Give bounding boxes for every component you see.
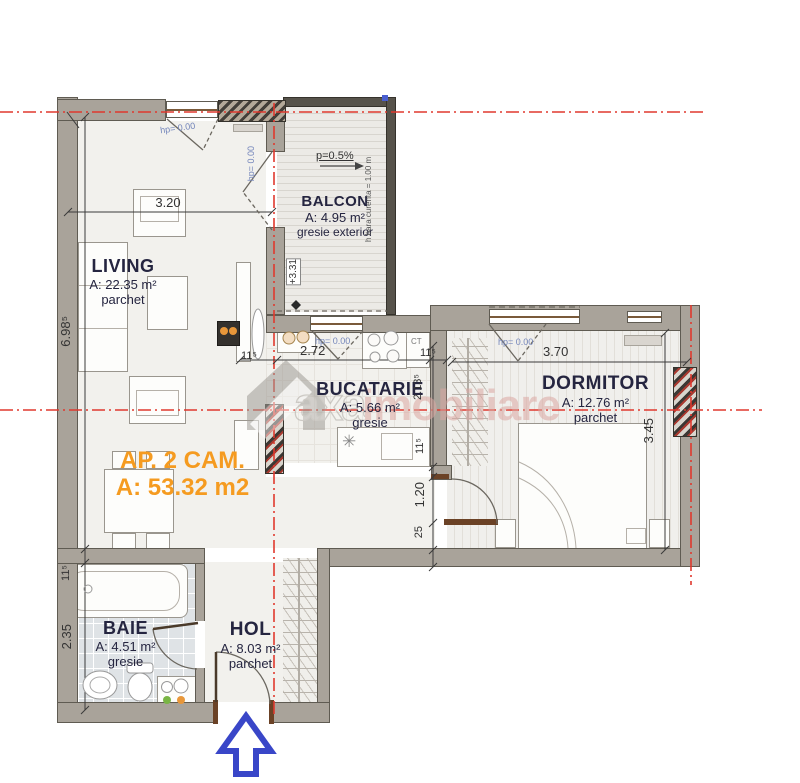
armchair-bottom-cushion — [136, 390, 179, 416]
hob-unit — [217, 321, 240, 346]
bedroom-window-small — [627, 311, 662, 323]
apartment-total-area: A: 53.32 m2 — [105, 474, 260, 501]
wall-bottom-band — [317, 548, 700, 567]
dim-bathroom-height: 2.35 — [59, 624, 74, 649]
vent-top — [233, 124, 263, 132]
bedroom-area: A: 12.76 m² — [528, 395, 663, 410]
dim-wall-115: 11⁵ — [60, 565, 72, 581]
bedroom-name: DORMITOR — [528, 373, 663, 395]
pillar-mid-hatch — [265, 404, 284, 474]
living-name: LIVING — [68, 256, 178, 277]
dim-living-width: 3.20 — [138, 195, 198, 210]
entrance-opening — [218, 702, 270, 723]
kitchen-window — [310, 316, 363, 331]
hp-label-bedroom-window: hp= 0.00 — [498, 337, 533, 347]
bedroom-window — [489, 309, 580, 324]
tv-board — [236, 262, 251, 362]
living-right-wall-lower — [266, 227, 285, 315]
kitchen-floor-type: gresie — [305, 415, 435, 430]
nightstand-left — [495, 519, 516, 548]
balcony-wall-top — [283, 97, 395, 107]
living-window — [166, 101, 218, 118]
bathroom-wall-top — [57, 548, 205, 564]
pillar-right-hatch — [673, 367, 697, 437]
bathroom-floor-type: gresie — [83, 654, 168, 669]
apartment-title: AP. 2 CAM. A: 53.32 m2 — [105, 447, 260, 501]
slope-label: p=0.5% — [316, 150, 354, 162]
bedroom-door-jamb-top — [431, 474, 449, 479]
pillow — [626, 528, 646, 544]
hp-label-balcony-door: hp= 0.00 — [246, 146, 256, 181]
entrance-jamb-left — [213, 700, 218, 724]
bedroom-radiator — [624, 335, 662, 346]
bathroom-label: BAIE A: 4.51 m² gresie — [83, 618, 168, 669]
wall-bottom — [57, 702, 330, 723]
living-area: A: 22.35 m² — [68, 277, 178, 292]
dim-bedroom-height: 3.45 — [641, 418, 656, 443]
dim-kitchen-height: 2.13⁵ — [412, 374, 424, 400]
living-floor-type: parchet — [68, 292, 178, 307]
bathtub-inner — [68, 571, 180, 611]
bedroom-door-leaf — [444, 519, 498, 525]
hol-wall-right — [317, 548, 330, 722]
bedroom-wardrobe-hatch — [452, 338, 488, 466]
dim-door-height: 1.20 — [412, 482, 427, 507]
corridor-floor — [266, 477, 435, 548]
dim-wall-115: 11⁵ — [420, 347, 436, 359]
balcony-level-label: +3.31 — [286, 258, 301, 285]
railing-height-label: h bara curenta = 1.00 m — [364, 112, 373, 242]
hp-label-kitchen-window: hp= 0.00 — [315, 336, 350, 346]
hall-area: A: 8.03 m² — [203, 641, 298, 656]
dim-wall-25: 25 — [413, 526, 425, 538]
dim-wall-115: 11⁵ — [414, 438, 426, 454]
bathroom-area: A: 4.51 m² — [83, 639, 168, 654]
nightstand-right — [649, 519, 670, 548]
hall-name: HOL — [203, 619, 298, 641]
dim-wall-115: 11⁵ — [241, 350, 257, 362]
kitchen-counter-inner — [381, 433, 413, 460]
wall-top — [57, 99, 166, 121]
balcony-wall-right — [386, 97, 396, 315]
wall-hatch-top — [218, 100, 286, 122]
living-label: LIVING A: 22.35 m² parchet — [68, 256, 178, 307]
stove — [362, 329, 407, 369]
kitchen-area: A: 5.66 m² — [305, 400, 435, 415]
dim-living-height: 6.98⁵ — [58, 316, 73, 347]
floor-plan: axa imobiliare LIVING A: 22.35 m² parche… — [0, 0, 800, 783]
entrance-jamb-right — [269, 700, 274, 724]
bathroom-name: BAIE — [83, 618, 168, 639]
living-right-wall-upper — [266, 121, 285, 152]
hall-floor-type: parchet — [203, 656, 298, 671]
entrance-arrow — [221, 716, 271, 774]
hall-label: HOL A: 8.03 m² parchet — [203, 619, 298, 671]
apartment-type: AP. 2 CAM. — [105, 447, 260, 474]
dishwasher-symbol: ✳ — [342, 432, 356, 452]
dim-bedroom-width: 3.70 — [543, 344, 568, 359]
boiler-label: CT — [411, 337, 422, 346]
